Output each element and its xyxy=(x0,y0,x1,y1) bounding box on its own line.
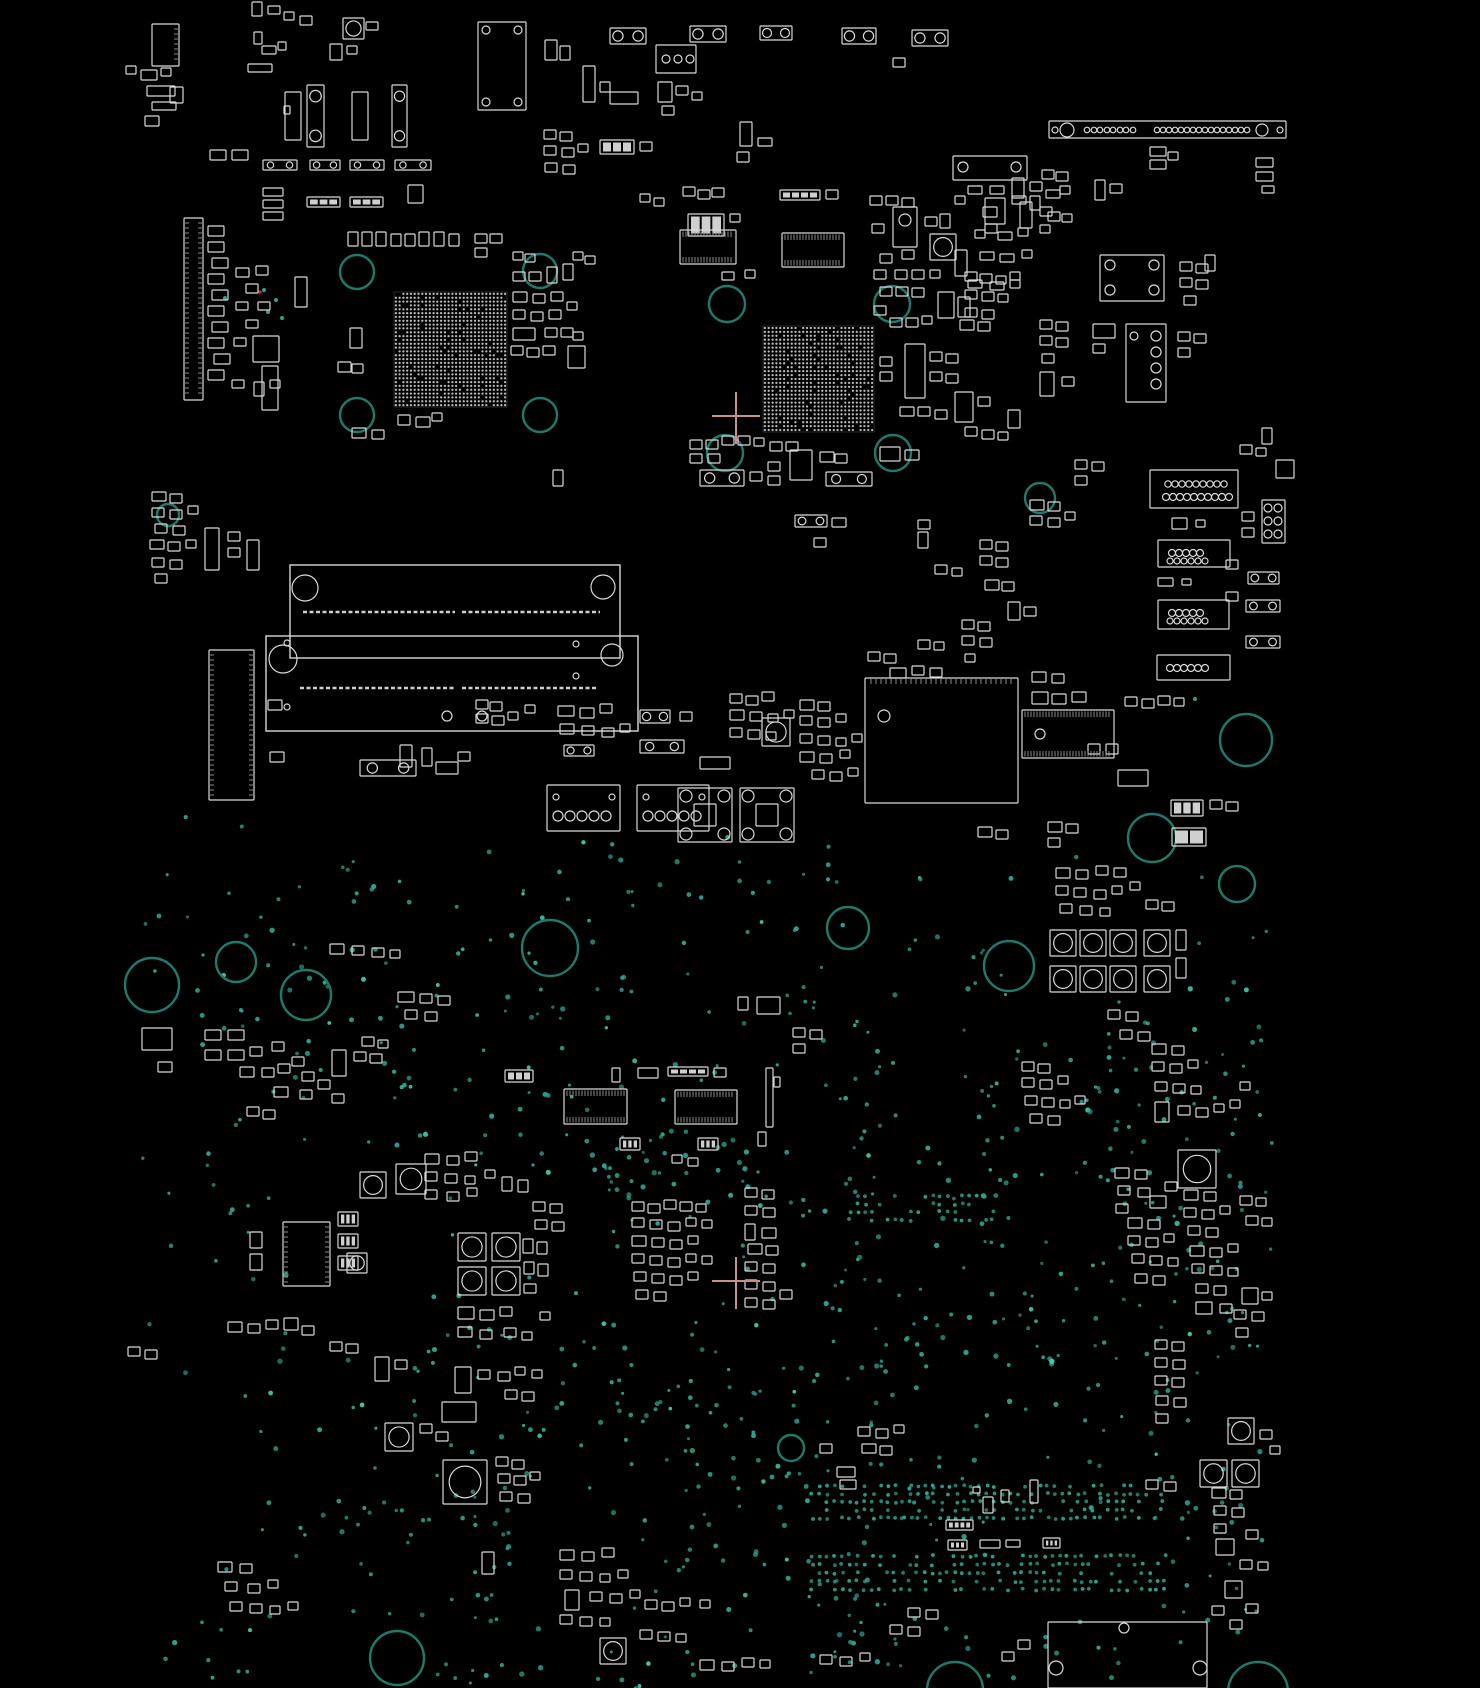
bga-ball xyxy=(836,409,838,411)
bga-ball xyxy=(417,297,419,299)
bga-ball xyxy=(485,369,487,371)
bga-ball xyxy=(478,366,480,368)
bga-ball xyxy=(395,373,397,375)
bga-ball xyxy=(481,327,483,329)
bga-ball xyxy=(764,413,766,415)
test-point xyxy=(455,905,459,909)
test-point xyxy=(261,1528,264,1531)
test-point xyxy=(1180,1516,1185,1521)
test-point xyxy=(870,1219,874,1223)
test-point xyxy=(1059,1272,1064,1277)
bga-ball xyxy=(771,429,773,431)
test-point xyxy=(1228,1562,1232,1566)
test-point xyxy=(602,1163,607,1168)
bga-ball xyxy=(840,370,842,372)
bga-ball xyxy=(493,377,495,379)
test-point xyxy=(144,922,148,926)
bga-ball xyxy=(421,369,423,371)
bga-ball xyxy=(496,327,498,329)
bga-ball xyxy=(806,382,808,384)
test-point xyxy=(367,1140,370,1143)
bga-ball xyxy=(783,421,785,423)
boardview-canvas[interactable] xyxy=(0,0,1480,1688)
test-point xyxy=(1006,1563,1010,1567)
test-point xyxy=(985,1138,989,1142)
bga-ball xyxy=(414,404,416,406)
bga-ball xyxy=(474,320,476,322)
bga-ball xyxy=(436,293,438,295)
bga-ball xyxy=(848,413,850,415)
test-point xyxy=(872,1517,876,1521)
test-point xyxy=(212,1183,216,1187)
test-point xyxy=(436,983,440,987)
bga-ball xyxy=(840,366,842,368)
test-point xyxy=(959,1587,963,1591)
bga-ball xyxy=(863,405,865,407)
bga-ball xyxy=(771,401,773,403)
test-point xyxy=(993,1492,997,1496)
test-point xyxy=(751,1391,755,1395)
bga-ball xyxy=(481,346,483,348)
test-point xyxy=(1099,1496,1103,1500)
test-point xyxy=(838,1308,842,1312)
bga-ball xyxy=(440,358,442,360)
bga-ball xyxy=(451,323,453,325)
bga-ball xyxy=(840,331,842,333)
bga-ball xyxy=(414,354,416,356)
test-point xyxy=(1148,1579,1152,1583)
bga-ball xyxy=(485,320,487,322)
bga-ball xyxy=(436,396,438,398)
bga-ball xyxy=(844,382,846,384)
test-point xyxy=(1110,1589,1114,1593)
bga-ball xyxy=(771,370,773,372)
bga-ball xyxy=(802,390,804,392)
test-point xyxy=(273,1446,278,1451)
test-point xyxy=(953,1210,957,1214)
bga-ball xyxy=(414,308,416,310)
test-point xyxy=(967,1508,970,1511)
bga-ball xyxy=(425,346,427,348)
bga-ball xyxy=(425,396,427,398)
test-point xyxy=(847,1552,851,1556)
test-point xyxy=(785,1558,789,1562)
test-point xyxy=(626,890,630,894)
test-point xyxy=(501,1532,505,1536)
bga-ball xyxy=(432,366,434,368)
bga-ball xyxy=(810,350,812,352)
bga-ball xyxy=(444,354,446,356)
bga-ball xyxy=(481,331,483,333)
bga-ball xyxy=(798,429,800,431)
bga-ball xyxy=(429,392,431,394)
test-point xyxy=(565,1133,568,1136)
test-point xyxy=(974,1554,978,1558)
test-point xyxy=(470,1450,475,1455)
bga-ball xyxy=(417,392,419,394)
bga-ball xyxy=(466,331,468,333)
bga-ball xyxy=(470,335,472,337)
test-point xyxy=(761,1479,765,1483)
test-point xyxy=(407,900,412,905)
bga-ball xyxy=(806,327,808,329)
bga-ball xyxy=(863,370,865,372)
bga-ball xyxy=(787,366,789,368)
bga-ball xyxy=(871,350,873,352)
bga-ball xyxy=(466,323,468,325)
test-point xyxy=(883,1603,886,1606)
test-point xyxy=(685,1424,690,1429)
bga-ball xyxy=(402,396,404,398)
test-point xyxy=(248,1628,252,1632)
test-point xyxy=(1103,1554,1107,1558)
bga-ball xyxy=(455,369,457,371)
bga-ball xyxy=(451,396,453,398)
bga-ball xyxy=(848,327,850,329)
bga-ball xyxy=(429,323,431,325)
bga-ball xyxy=(794,417,796,419)
bga-ball xyxy=(395,327,397,329)
test-point xyxy=(986,1484,990,1488)
test-point xyxy=(866,1153,871,1158)
bga-ball xyxy=(493,373,495,375)
bga-ball xyxy=(802,362,804,364)
bga-ball xyxy=(466,381,468,383)
test-point xyxy=(1139,1571,1143,1575)
bga-ball xyxy=(455,316,457,318)
test-point xyxy=(489,1114,494,1119)
bga-ball xyxy=(485,346,487,348)
bga-ball xyxy=(783,374,785,376)
bga-ball xyxy=(814,417,816,419)
bga-ball xyxy=(432,312,434,314)
bga-ball xyxy=(764,331,766,333)
test-point xyxy=(621,1392,624,1395)
bga-ball xyxy=(402,312,404,314)
test-point xyxy=(368,1511,372,1515)
test-point xyxy=(1040,1262,1043,1265)
bga-ball xyxy=(444,369,446,371)
bga-ball xyxy=(478,339,480,341)
bga-ball xyxy=(814,421,816,423)
test-point xyxy=(964,1635,968,1639)
bga-ball xyxy=(455,312,457,314)
bga-ball xyxy=(836,335,838,337)
test-point xyxy=(661,1098,666,1103)
bga-ball xyxy=(821,425,823,427)
bga-ball xyxy=(410,362,412,364)
bga-ball xyxy=(783,378,785,380)
test-point xyxy=(1109,1553,1113,1557)
test-point xyxy=(684,1489,687,1492)
test-point xyxy=(938,1579,942,1583)
bga-ball xyxy=(856,413,858,415)
bga-ball xyxy=(395,362,397,364)
test-point xyxy=(1165,1097,1170,1102)
bga-ball xyxy=(833,413,835,415)
test-point xyxy=(359,1562,363,1566)
bga-ball xyxy=(451,381,453,383)
bga-ball xyxy=(504,343,506,345)
test-point xyxy=(619,1677,624,1682)
bga-ball xyxy=(406,346,408,348)
test-point xyxy=(566,897,570,901)
bga-ball xyxy=(459,358,461,360)
bga-ball xyxy=(436,377,438,379)
test-point xyxy=(695,1463,699,1467)
test-point xyxy=(473,1496,476,1499)
bga-ball xyxy=(474,377,476,379)
bga-ball xyxy=(406,335,408,337)
bga-ball xyxy=(444,312,446,314)
test-point xyxy=(944,1626,949,1631)
bga-ball xyxy=(496,373,498,375)
bga-ball xyxy=(402,404,404,406)
bga-ball xyxy=(463,308,465,310)
test-point xyxy=(969,1555,973,1559)
bga-ball xyxy=(489,327,491,329)
bga-ball xyxy=(459,316,461,318)
test-point xyxy=(1091,1264,1095,1268)
test-point xyxy=(1061,1517,1065,1521)
test-point xyxy=(853,1190,857,1194)
test-point xyxy=(743,1593,748,1598)
test-point xyxy=(528,1427,533,1432)
bga-ball xyxy=(771,358,773,360)
bga-ball xyxy=(481,312,483,314)
test-point xyxy=(874,1363,879,1368)
test-point xyxy=(412,1399,416,1403)
bga-ball xyxy=(429,400,431,402)
bga-ball xyxy=(787,374,789,376)
pad xyxy=(712,217,721,234)
bga-ball xyxy=(447,293,449,295)
test-point xyxy=(612,1230,616,1234)
bga-ball xyxy=(414,358,416,360)
bga-ball xyxy=(496,389,498,391)
bga-ball xyxy=(775,401,777,403)
bga-ball xyxy=(451,369,453,371)
test-point xyxy=(1113,1647,1117,1651)
pad xyxy=(689,1070,696,1074)
bga-ball xyxy=(844,421,846,423)
bga-ball xyxy=(859,394,861,396)
bga-ball xyxy=(806,335,808,337)
test-point xyxy=(1073,1555,1077,1559)
bga-ball xyxy=(406,369,408,371)
bga-ball xyxy=(432,350,434,352)
bga-ball xyxy=(493,400,495,402)
bga-ball xyxy=(787,331,789,333)
bga-ball xyxy=(791,394,793,396)
test-point xyxy=(764,1194,768,1198)
bga-ball xyxy=(398,404,400,406)
bga-ball xyxy=(787,327,789,329)
test-point xyxy=(1117,1563,1121,1567)
bga-ball xyxy=(802,366,804,368)
test-point xyxy=(813,1001,816,1004)
bga-ball xyxy=(836,386,838,388)
bga-ball xyxy=(771,413,773,415)
bga-ball xyxy=(500,404,502,406)
test-point xyxy=(746,930,750,934)
test-point xyxy=(699,895,703,899)
test-point xyxy=(963,1029,966,1032)
bga-ball xyxy=(852,382,854,384)
bga-ball xyxy=(840,354,842,356)
bga-ball xyxy=(436,369,438,371)
bga-ball xyxy=(451,335,453,337)
test-point xyxy=(1162,1579,1166,1583)
test-point xyxy=(611,1323,616,1328)
bga-ball xyxy=(496,362,498,364)
test-point xyxy=(1242,1064,1245,1067)
bga-ball xyxy=(451,316,453,318)
test-point xyxy=(894,1501,898,1505)
test-point xyxy=(608,854,613,859)
test-point xyxy=(1151,1201,1155,1205)
bga-ball xyxy=(810,339,812,341)
test-point xyxy=(975,1580,979,1584)
test-point xyxy=(792,1404,796,1408)
bga-ball xyxy=(771,409,773,411)
bga-ball xyxy=(821,366,823,368)
bga-ball xyxy=(414,323,416,325)
test-point xyxy=(399,1024,404,1029)
bga-ball xyxy=(444,304,446,306)
bga-ball xyxy=(474,354,476,356)
test-point xyxy=(1095,1554,1099,1558)
test-point xyxy=(1109,1069,1113,1073)
test-point xyxy=(303,1533,306,1536)
bga-ball xyxy=(833,409,835,411)
bga-ball xyxy=(429,381,431,383)
bga-ball xyxy=(814,327,816,329)
test-point xyxy=(855,1563,859,1567)
test-point xyxy=(1235,1630,1240,1635)
test-point xyxy=(1165,1388,1170,1393)
bga-ball xyxy=(436,373,438,375)
pad xyxy=(1175,831,1188,844)
bga-ball xyxy=(478,362,480,364)
test-point xyxy=(924,1588,928,1592)
test-point xyxy=(949,1313,953,1317)
bga-ball xyxy=(810,401,812,403)
test-point xyxy=(812,1006,815,1009)
bga-ball xyxy=(444,366,446,368)
bga-ball xyxy=(436,350,438,352)
bga-ball xyxy=(500,297,502,299)
bga-ball xyxy=(867,335,869,337)
test-point xyxy=(1087,1109,1092,1114)
bga-ball xyxy=(481,362,483,364)
test-point xyxy=(1102,1340,1106,1344)
test-point xyxy=(1030,1515,1034,1519)
bga-ball xyxy=(496,297,498,299)
bga-ball xyxy=(444,323,446,325)
test-point xyxy=(228,1211,232,1215)
bga-ball xyxy=(470,339,472,341)
boardview-viewport[interactable]: pcb-boardview-screen xyxy=(0,0,1480,1688)
bga-ball xyxy=(768,390,770,392)
test-point xyxy=(500,1334,503,1337)
bga-ball xyxy=(398,323,400,325)
bga-ball xyxy=(406,327,408,329)
bga-ball xyxy=(440,300,442,302)
bga-ball xyxy=(821,378,823,380)
bga-ball xyxy=(432,354,434,356)
bga-ball xyxy=(863,382,865,384)
bga-ball xyxy=(863,429,865,431)
test-point xyxy=(1099,1175,1103,1179)
test-point xyxy=(810,1555,814,1559)
bga-ball xyxy=(496,396,498,398)
test-point xyxy=(240,1009,243,1012)
test-point xyxy=(837,1632,842,1637)
bga-ball xyxy=(406,312,408,314)
test-point xyxy=(317,1427,322,1432)
bga-ball xyxy=(429,308,431,310)
test-point xyxy=(833,1580,837,1584)
test-point xyxy=(341,865,345,869)
test-point xyxy=(844,1268,847,1271)
bga-ball xyxy=(848,386,850,388)
bga-ball xyxy=(771,394,773,396)
test-point xyxy=(668,1407,672,1411)
bga-ball xyxy=(466,385,468,387)
bga-ball xyxy=(852,339,854,341)
test-point xyxy=(862,1540,867,1545)
bga-ball xyxy=(474,381,476,383)
test-point xyxy=(1093,1516,1097,1520)
test-point xyxy=(731,1475,736,1480)
bga-ball xyxy=(840,382,842,384)
test-point xyxy=(579,1443,583,1447)
test-point xyxy=(1016,1049,1020,1053)
bga-ball xyxy=(421,354,423,356)
bga-ball xyxy=(406,300,408,302)
bga-ball xyxy=(485,327,487,329)
test-point xyxy=(931,1484,935,1488)
bga-ball xyxy=(779,339,781,341)
test-point xyxy=(1075,1516,1079,1520)
bga-ball xyxy=(814,370,816,372)
bga-ball xyxy=(775,331,777,333)
bga-ball xyxy=(764,362,766,364)
test-point xyxy=(871,1554,875,1558)
bga-ball xyxy=(425,400,427,402)
bga-ball xyxy=(470,358,472,360)
bga-ball xyxy=(829,354,831,356)
test-point xyxy=(610,842,614,846)
test-point xyxy=(627,1155,632,1160)
bga-ball xyxy=(821,339,823,341)
test-point xyxy=(910,1516,914,1520)
bga-ball xyxy=(791,339,793,341)
test-point xyxy=(355,891,359,895)
test-point xyxy=(833,1650,836,1653)
bga-ball xyxy=(871,417,873,419)
bga-ball xyxy=(474,396,476,398)
bga-ball xyxy=(821,327,823,329)
bga-ball xyxy=(775,421,777,423)
test-point xyxy=(777,1505,782,1510)
red-mark xyxy=(258,290,261,293)
bga-ball xyxy=(432,346,434,348)
bga-ball xyxy=(810,417,812,419)
bga-ball xyxy=(817,343,819,345)
test-point xyxy=(984,1508,988,1512)
